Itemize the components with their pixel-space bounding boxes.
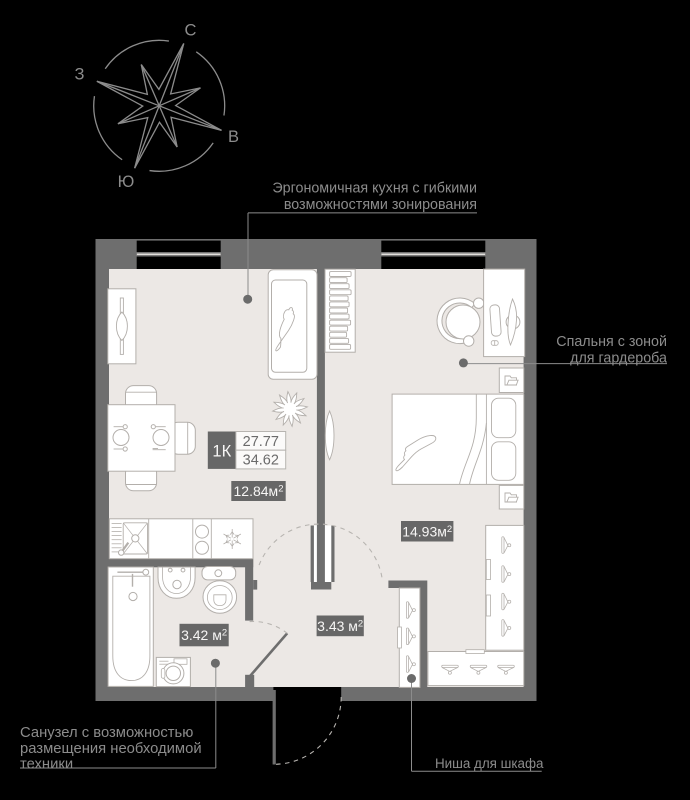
svg-text:12.84м2: 12.84м2: [234, 483, 284, 499]
svg-text:техники: техники: [20, 757, 73, 773]
svg-text:З: З: [75, 66, 85, 84]
svg-text:возможностями зонирования: возможностями зонирования: [284, 197, 477, 213]
svg-text:34.62: 34.62: [243, 453, 279, 469]
svg-text:3.42 м2: 3.42 м2: [181, 627, 227, 643]
svg-text:Спальня с зоной: Спальня с зоной: [556, 334, 667, 350]
svg-text:3.43 м2: 3.43 м2: [317, 618, 363, 634]
svg-text:В: В: [228, 128, 239, 146]
svg-text:14.93м2: 14.93м2: [402, 523, 452, 539]
svg-text:Ю: Ю: [118, 173, 135, 191]
svg-text:Ниша для шкафа: Ниша для шкафа: [435, 756, 544, 771]
svg-text:Санузел с возможностью: Санузел с возможностью: [20, 725, 193, 741]
svg-text:Эргономичная кухня с гибкими: Эргономичная кухня с гибкими: [272, 181, 477, 197]
svg-text:размещения необходимой: размещения необходимой: [20, 741, 202, 757]
svg-text:1К: 1К: [212, 442, 231, 460]
svg-text:27.77: 27.77: [243, 434, 279, 450]
svg-text:С: С: [185, 22, 197, 40]
